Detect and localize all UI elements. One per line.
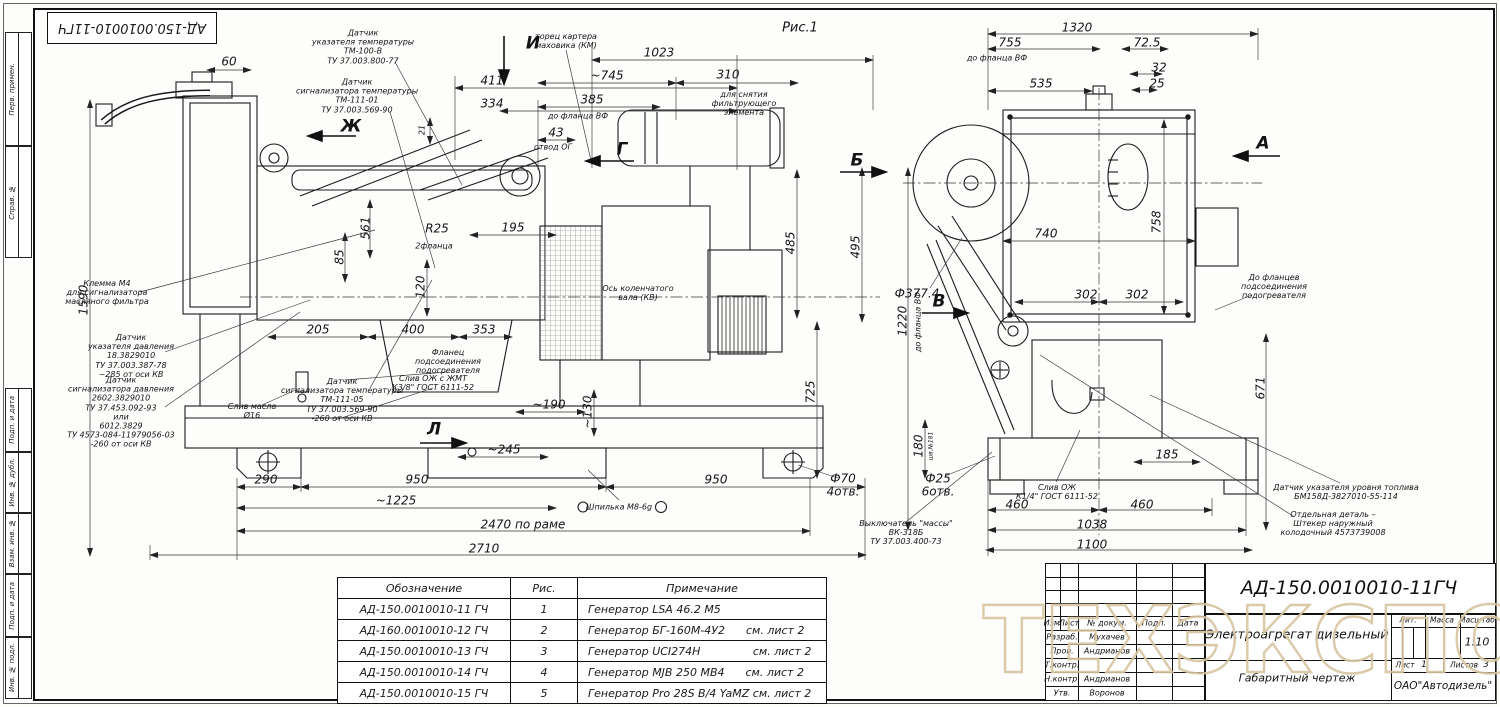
table-row: АД-150.0010010-14 ГЧ4Генератор MJB 250 M… <box>338 662 827 683</box>
dim-460b: 460 <box>1131 498 1154 511</box>
tb-mass-label: Масса <box>1430 616 1454 625</box>
view-arrow-i: И <box>526 34 540 53</box>
dim-1225: ~1225 <box>376 494 417 507</box>
cell-note: Генератор Pro 28S B/4 YaMZ см. лист 2 <box>578 683 827 704</box>
callout-temp-signal-1: Датчик сигнализатора температуры ТМ-111-… <box>296 78 418 115</box>
cell-designation: АД-150.0010010-13 ГЧ <box>338 641 511 662</box>
dim-411: 411 <box>481 74 504 87</box>
dim-740: 740 <box>1035 227 1058 240</box>
callout-heater-flanges: До фланцев подсоединения подогревателя <box>1241 273 1307 301</box>
callout-temp-signal-2: Датчик сигнализатора температуры ТМ-111-… <box>281 377 403 423</box>
table-row: АД-150.0010010-11 ГЧ1Генератор LSA 46.2 … <box>338 599 827 620</box>
tb-role: Разраб. <box>1046 633 1077 642</box>
callout-filter-removal: для снятия фильтрующего элемента <box>712 90 777 118</box>
dim-495: 495 <box>849 236 862 259</box>
drawing-sheet: Перв. примен. Справ. № Подп. и дата Инв.… <box>0 0 1500 707</box>
tb-col-dokum: № докум. <box>1087 619 1126 628</box>
dim-r25: R25 <box>425 222 449 235</box>
tb-doc-type: Габаритный чертеж <box>1239 672 1356 685</box>
callout-flywheel-face: торец картера маховика (КМ) <box>535 32 597 50</box>
callout-coolant-drain-2: Слив ОЖ К1/4" ГОСТ 6111-52 <box>1016 483 1098 501</box>
dim-1320: 1320 <box>1062 21 1093 34</box>
tb-doc-number: АД-150.0010010-11ГЧ <box>1241 577 1457 599</box>
label-shl-181: шв.№181 <box>929 432 936 461</box>
cell-note: Генератор MJB 250 MB4 см. лист 2 <box>578 662 827 683</box>
tb-sheet-no: 1 <box>1421 660 1427 670</box>
dim-535: 535 <box>1030 77 1053 90</box>
tb-sheets-label: Листов <box>1450 661 1478 670</box>
view-arrow-b: Б <box>851 151 864 170</box>
cell-figure: 3 <box>511 641 578 662</box>
table-row: АД-150.0010010-15 ГЧ5Генератор Pro 28S B… <box>338 683 827 704</box>
tb-scale-label: Масштаб <box>1459 616 1495 625</box>
callout-oil-drain: Слив масла Ø16 <box>228 402 277 420</box>
label-otvod-og: отвод ОГ <box>534 142 572 151</box>
dim-950b: 950 <box>705 473 728 486</box>
dim-561: 561 <box>359 217 372 240</box>
tb-name: Мухачев <box>1089 633 1125 642</box>
dim-120: 120 <box>414 276 427 299</box>
callout-pressure-gauge: Датчик указателя давления 18.3829010 ТУ … <box>88 333 174 379</box>
table-row: АД-150.0010010-13 ГЧ3Генератор UCI274H с… <box>338 641 827 662</box>
dim-190: ~190 <box>533 398 566 411</box>
cell-designation: АД-160.0010010-12 ГЧ <box>338 620 511 641</box>
dim-950a: 950 <box>406 473 429 486</box>
label-to-flange-vf-2: до фланца ВФ <box>967 53 1027 62</box>
dim-385: 385 <box>581 93 604 106</box>
cell-designation: АД-150.0010010-14 ГЧ <box>338 662 511 683</box>
dim-1100: 1100 <box>1077 538 1108 551</box>
cell-note: Генератор БГ-160М-4У2 см. лист 2 <box>578 620 827 641</box>
dim-f25-6otv: Ф25 6отв. <box>922 473 955 500</box>
dim-85: 85 <box>333 249 346 264</box>
cell-figure: 1 <box>511 599 578 620</box>
callout-mass-switch: Выключатель "массы" ВК-318Б ТУ 37.003.40… <box>859 519 952 547</box>
dim-185: 185 <box>1156 448 1179 461</box>
callout-pressure-signal: Датчик сигнализатора давления 2602.38290… <box>67 375 175 449</box>
tb-product-title: Электроагрегат дизельный <box>1206 627 1389 642</box>
dim-f70-4otv: Ф70 4отв. <box>827 473 860 500</box>
tb-name: Воронов <box>1089 689 1124 698</box>
callout-heater-flange: Фланец подсоединения подогревателя <box>415 348 481 376</box>
dim-245: ~245 <box>488 443 521 456</box>
view-arrow-a: А <box>1256 134 1269 153</box>
figure-label: Рис.1 <box>782 22 818 37</box>
dim-400: 400 <box>402 323 425 336</box>
col-figure: Рис. <box>511 578 578 599</box>
callout-fuel-level-sensor: Датчик указателя уровня топлива БМ158Д-3… <box>1273 483 1419 501</box>
cell-note: Генератор UCI274H см. лист 2 <box>578 641 827 662</box>
col-designation: Обозначение <box>338 578 511 599</box>
dim-1038: 1038 <box>1077 518 1108 531</box>
parts-table: Обозначение Рис. Примечание АД-150.00100… <box>337 577 827 704</box>
dim-21: 21 <box>417 125 426 135</box>
dim-1220: 1220 <box>896 306 909 337</box>
cell-figure: 4 <box>511 662 578 683</box>
dim-43: 43 <box>548 126 563 139</box>
dim-302a: 302 <box>1075 288 1098 301</box>
dim-130: ~130 <box>581 396 594 429</box>
label-2-flange: 2фланца <box>415 241 453 250</box>
tb-col-podp: Подп. <box>1142 619 1166 628</box>
cell-note: Генератор LSA 46.2 M5 <box>578 599 827 620</box>
tb-sheets-total: 3 <box>1483 660 1489 670</box>
callout-coolant-drain: Слив ОЖ с ЖМТ К3/8" ГОСТ 6111-52 <box>392 374 474 392</box>
callout-crank-axis: Ось коленчатого вала (КВ) <box>602 284 673 302</box>
title-block: Изм. Лист № докум. Подп. Дата Разраб. Му… <box>1045 563 1496 701</box>
cell-figure: 5 <box>511 683 578 704</box>
cell-designation: АД-150.0010010-11 ГЧ <box>338 599 511 620</box>
dim-755: 755 <box>999 36 1022 49</box>
callout-klemma-m4: Клемма М4 для сигнализатора масляного фи… <box>65 279 149 307</box>
tb-col-list: Лист <box>1059 619 1079 628</box>
dim-195: 195 <box>502 221 525 234</box>
tb-scale-value: 1:10 <box>1465 636 1490 649</box>
dim-485: 485 <box>784 232 797 255</box>
dim-32: 32 <box>1151 61 1166 74</box>
dim-334: 334 <box>481 97 504 110</box>
dim-60: 60 <box>221 55 236 68</box>
tb-sheet-label: Лист <box>1395 661 1414 670</box>
tb-name: Андрианов <box>1084 675 1130 684</box>
dim-758: 758 <box>1150 211 1163 234</box>
dim-180: 180 <box>912 435 925 458</box>
dim-1023: 1023 <box>644 46 675 59</box>
dim-2710: 2710 <box>469 542 500 555</box>
tb-role: Т.контр. <box>1045 661 1080 670</box>
tb-col-data: Дата <box>1178 619 1199 628</box>
parts-table-header-row: Обозначение Рис. Примечание <box>338 578 827 599</box>
cell-figure: 2 <box>511 620 578 641</box>
callout-plug-detail: Отдельная деталь – Штекер наружный колод… <box>1280 510 1385 538</box>
dim-205: 205 <box>307 323 330 336</box>
label-to-flange-vf: до фланца ВФ <box>548 111 608 120</box>
dim-671: 671 <box>1254 377 1267 400</box>
view-arrow-l: Л <box>427 420 441 439</box>
dim-302b: 302 <box>1126 288 1149 301</box>
dim-745: ~745 <box>591 69 624 82</box>
dim-310: 310 <box>717 68 740 81</box>
dim-353: 353 <box>473 323 496 336</box>
dim-72-5: 72.5 <box>1134 36 1161 49</box>
tb-company: ОАО"Автодизель" <box>1394 680 1492 692</box>
dim-2470-po-rame: 2470 по раме <box>481 518 566 531</box>
dim-725: 725 <box>804 381 817 404</box>
dim-290: 290 <box>255 473 278 486</box>
cell-designation: АД-150.0010010-15 ГЧ <box>338 683 511 704</box>
callout-stud-m8: Шпилька М8-6g <box>586 502 652 511</box>
view-arrow-zh: Ж <box>341 117 362 136</box>
tb-name: Андрианов <box>1084 647 1130 656</box>
left-view-art <box>96 72 823 513</box>
tb-role: Н.контр. <box>1044 675 1080 684</box>
tb-lit-label: Лит. <box>1399 616 1416 625</box>
tb-role: Утв. <box>1054 689 1071 698</box>
callout-temp-gauge: Датчик указателя температуры ТМ-100-В ТУ… <box>312 29 414 66</box>
table-row: АД-160.0010010-12 ГЧ2Генератор БГ-160М-4… <box>338 620 827 641</box>
col-note: Примечание <box>578 578 827 599</box>
label-to-flange-vf-vertical: до фланца ВФ <box>913 292 922 352</box>
tb-role: Пров. <box>1050 647 1073 656</box>
dim-25: 25 <box>1149 77 1164 90</box>
view-arrow-g: Г <box>617 140 628 159</box>
